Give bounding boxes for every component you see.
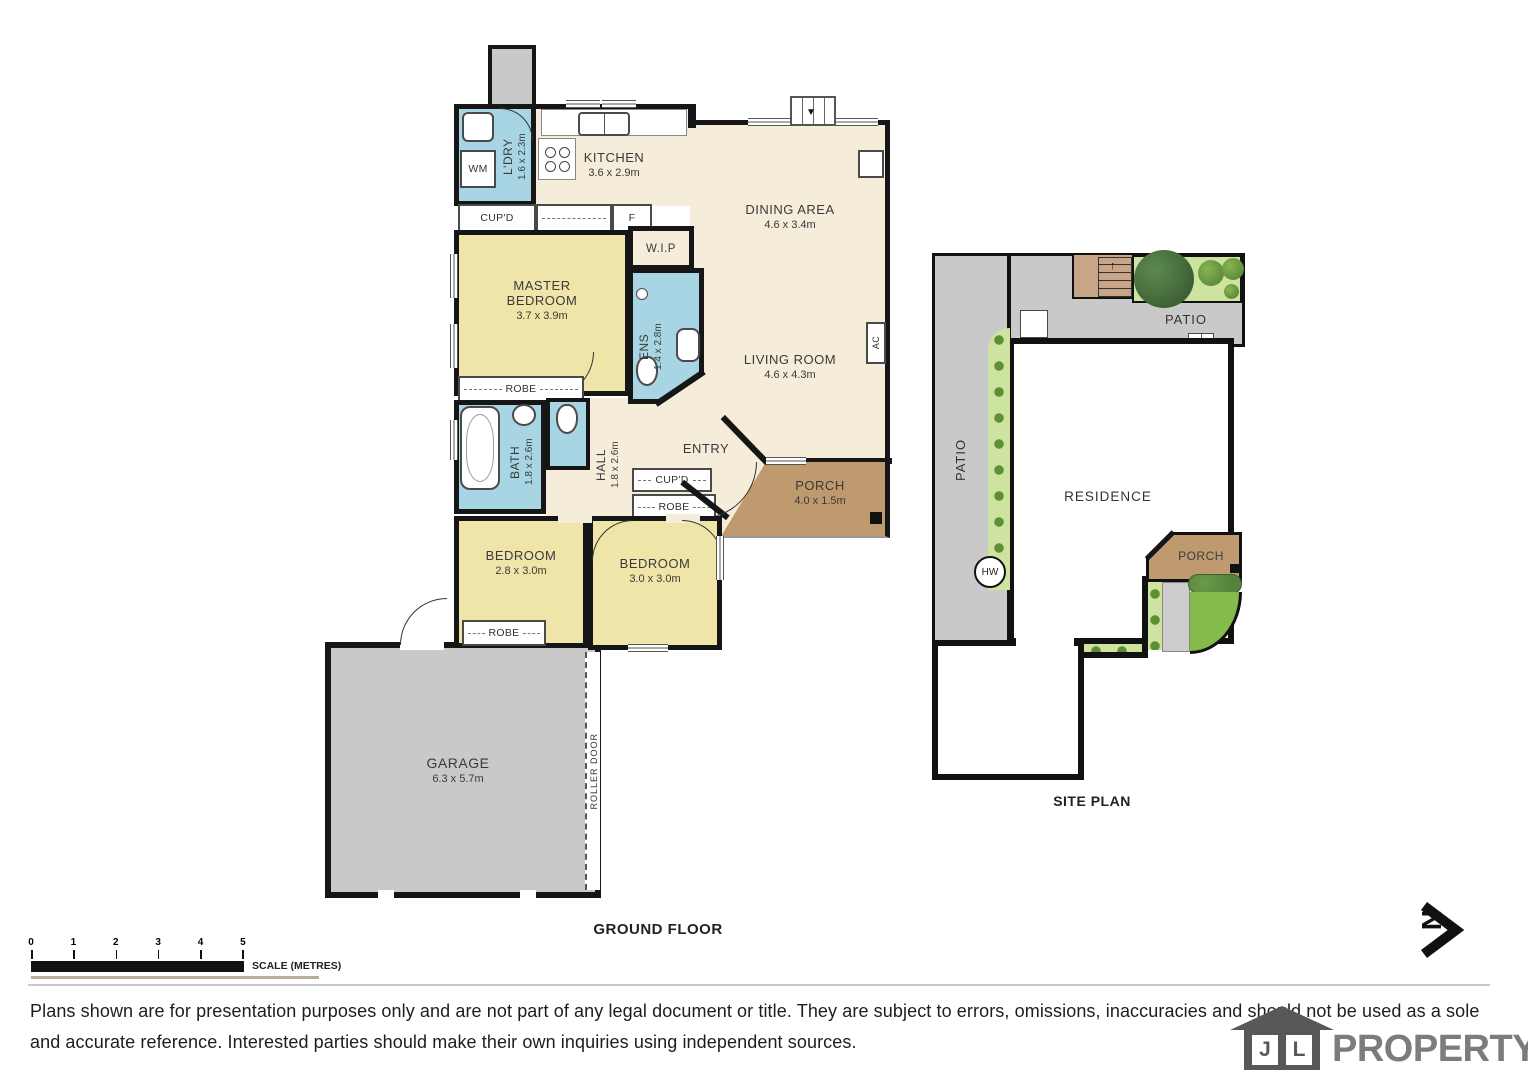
- scale-tick-label: 5: [237, 937, 249, 948]
- scale-tick-label: 4: [195, 937, 207, 948]
- laundry-trough: [462, 112, 494, 142]
- wc-toilet: [556, 404, 578, 434]
- bath-tub-inner: [466, 414, 494, 482]
- site-residence-seam: [1016, 634, 1074, 648]
- logo-letter-j-box: J: [1252, 1035, 1278, 1065]
- stairs-up-arrow-icon: ↑: [1110, 260, 1116, 272]
- dining-window: [748, 118, 790, 126]
- scale-tick-label: 0: [25, 937, 37, 948]
- ens-label: ENS 1.4 x 2.8m: [630, 298, 670, 396]
- cupd-hall: CUP'D: [632, 468, 712, 492]
- bath-tub: [460, 406, 500, 490]
- logo-letter-l-box: L: [1286, 1035, 1312, 1065]
- robe-bedroom1: ROBE: [462, 620, 546, 646]
- kitchen-sink: [578, 112, 630, 136]
- scale-tick-label: 2: [110, 937, 122, 948]
- bedroom2-window: [716, 536, 724, 580]
- ground-floor-title: GROUND FLOOR: [558, 921, 758, 938]
- roller-door-label: ROLLER DOOR: [589, 733, 599, 810]
- site-wall-h: [1078, 652, 1148, 658]
- cooktop: [538, 138, 576, 180]
- tick-mark: [200, 950, 202, 959]
- site-patio-left-label: PATIO: [948, 420, 972, 500]
- tick-mark: [31, 950, 33, 959]
- footer-divider: [28, 984, 1490, 986]
- site-hedge: [1188, 574, 1242, 594]
- garage-wall-notch: [520, 890, 536, 898]
- hall-label: HALL 1.8 x 2.6m: [586, 420, 628, 510]
- bedroom2-window: [628, 644, 668, 652]
- tree-icon: [1134, 250, 1194, 308]
- kitchen-bench-dashed: [536, 204, 612, 232]
- hot-water-unit: HW: [974, 556, 1006, 588]
- site-lawn: [1190, 592, 1242, 654]
- dining-wall-unit: [858, 150, 884, 178]
- fridge-label: F: [629, 212, 636, 224]
- tick-mark: [116, 950, 118, 959]
- dining-window: [836, 118, 878, 126]
- scale-tick-label: 1: [67, 937, 79, 948]
- porch-post: [870, 512, 882, 524]
- wip-name: W.I.P: [646, 243, 676, 255]
- bedroom1-door-gap: [558, 514, 592, 523]
- north-label: N: [1416, 910, 1447, 930]
- garage-door-gap: [400, 640, 444, 650]
- bath-name: BATH: [508, 416, 522, 508]
- north-arrow-icon: N: [1398, 898, 1468, 962]
- logo-letter-j: J: [1259, 1038, 1271, 1062]
- bath-dims: 1.8 x 2.6m: [524, 416, 535, 508]
- robe-bedroom1-label: ROBE: [489, 627, 520, 639]
- laundry-label: L'DRY 1.6 x 2.3m: [494, 112, 534, 202]
- site-patio-left-text: PATIO: [953, 420, 968, 500]
- garage-room: [325, 642, 601, 898]
- scale-bar-label: SCALE (METRES): [252, 960, 392, 972]
- site-porch-post: [1230, 564, 1239, 573]
- kitchen-window: [602, 100, 636, 108]
- site-porch-name: PORCH: [1178, 549, 1224, 563]
- bush-icon: [1222, 258, 1244, 280]
- wip-room: W.I.P: [628, 226, 694, 270]
- site-residence-garage: [932, 640, 1084, 780]
- scale-bar: [31, 961, 244, 972]
- master-window: [450, 324, 458, 368]
- stairs-down-arrow-icon: ▼: [806, 107, 816, 118]
- bush-icon: [1224, 284, 1239, 299]
- ens-dims: 1.4 x 2.8m: [653, 298, 664, 396]
- site-meter-box: [1020, 310, 1048, 338]
- external-stairs: ▼: [790, 96, 836, 126]
- tick-mark: [73, 950, 75, 959]
- hall-dims: 1.8 x 2.6m: [610, 420, 621, 510]
- floor-plan-page: ROLLER DOOR WM L'DRY 1.6 x 2.3m KITCHEN …: [0, 0, 1528, 1080]
- logo-house-roof-icon: [1230, 1006, 1334, 1030]
- scale-bar-numbers: 0 1 2 3 4 5: [25, 937, 249, 948]
- ac-unit: AC: [866, 322, 886, 364]
- site-porch-label: PORCH: [1163, 549, 1239, 563]
- kitchen-window: [566, 100, 600, 108]
- scale-bar-underline: [31, 976, 319, 979]
- scale-bar-ticks: [31, 950, 244, 959]
- logo-letter-l: L: [1293, 1038, 1306, 1062]
- laundry-dims: 1.6 x 2.3m: [517, 112, 528, 202]
- cupboard-label: CUP'D: [480, 212, 513, 224]
- scale-tick-label: 3: [152, 937, 164, 948]
- master-bedroom-room: [454, 230, 630, 396]
- garage-wall-notch: [378, 890, 394, 898]
- porch-window: [766, 457, 806, 465]
- site-garden-bed-porch: [1148, 582, 1162, 650]
- tick-mark: [158, 950, 160, 959]
- site-walkway: [1162, 582, 1190, 652]
- site-garden-bed-left: [988, 328, 1010, 590]
- washing-machine: WM: [460, 150, 496, 188]
- logo-property-text: PROPERTY: [1332, 1028, 1528, 1071]
- cooktop-burners-icon: [544, 147, 570, 172]
- ens-basin: [676, 328, 700, 362]
- bath-window: [450, 420, 458, 460]
- ens-name: ENS: [637, 298, 651, 396]
- washing-machine-label: WM: [468, 163, 487, 175]
- agency-logo: J L PROPERTY: [1228, 1006, 1528, 1076]
- kitchen-dining-step-wall: [688, 104, 696, 128]
- roller-door: ROLLER DOOR: [585, 652, 600, 890]
- ac-label: AC: [871, 336, 881, 349]
- site-wall-v: [1142, 576, 1148, 652]
- kitchen-cupboard: CUP'D: [458, 204, 536, 232]
- garage-door-arc: [400, 598, 447, 645]
- bedroom2-door-gap: [666, 514, 700, 523]
- robe-master-label: ROBE: [506, 383, 537, 395]
- robe-hall-label: ROBE: [659, 501, 690, 513]
- chimney: [488, 45, 536, 108]
- hw-label: HW: [982, 567, 999, 578]
- laundry-name: L'DRY: [501, 112, 515, 202]
- bedroom2-room: [588, 516, 722, 650]
- tick-mark: [242, 950, 244, 959]
- site-plan-title: SITE PLAN: [1017, 793, 1167, 809]
- site-stairs: ↑: [1098, 257, 1132, 297]
- compass: N: [1398, 898, 1468, 962]
- bath-label: BATH 1.8 x 2.6m: [500, 416, 542, 508]
- bush-icon: [1198, 260, 1224, 286]
- wip-label: W.I.P: [633, 243, 689, 255]
- master-window: [450, 254, 458, 298]
- hall-name: HALL: [594, 420, 608, 510]
